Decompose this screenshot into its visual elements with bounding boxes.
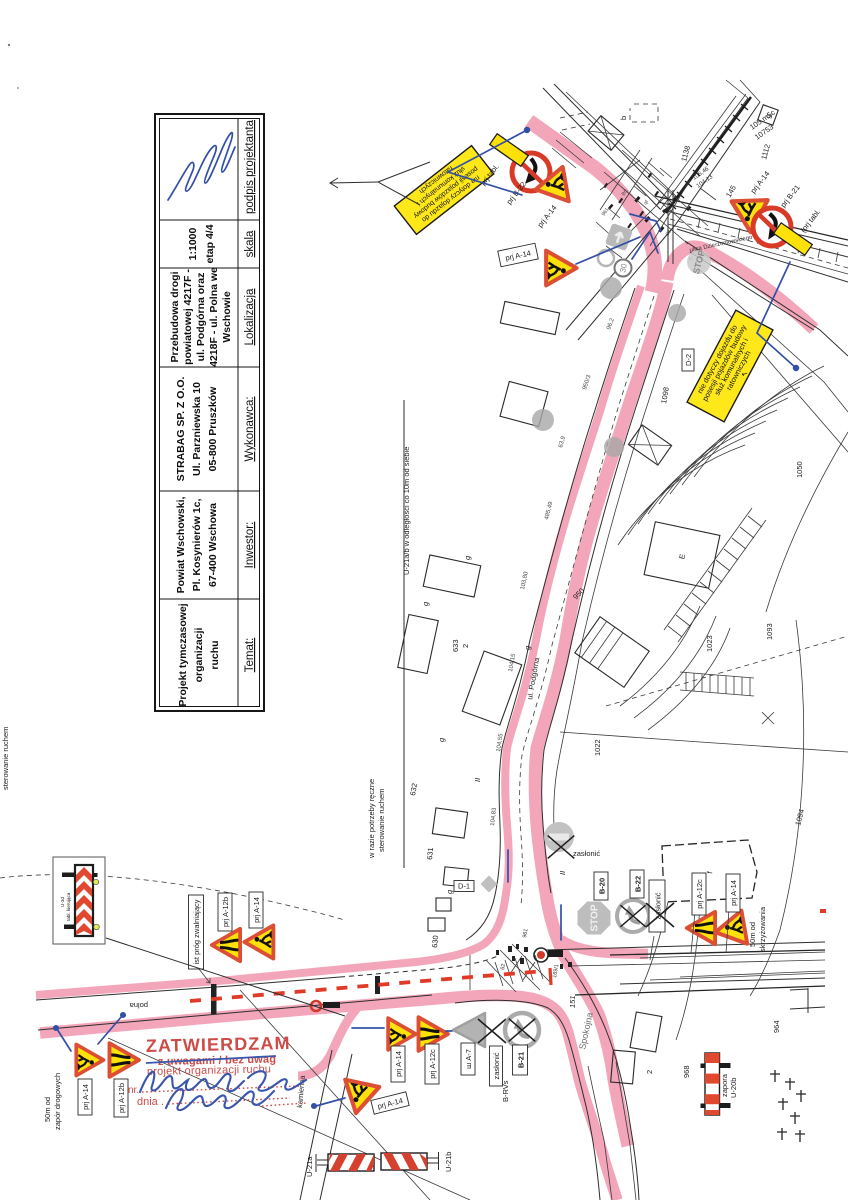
svg-text:1:1000: 1:1000 bbox=[187, 227, 199, 260]
svg-text:ist próg zwalniający: ist próg zwalniający bbox=[192, 899, 201, 964]
svg-text:U-21a/b w odległości co 10m od: U-21a/b w odległości co 10m od siebie bbox=[402, 447, 411, 575]
svg-text:Pl. Kosynierów 1c,: Pl. Kosynierów 1c, bbox=[191, 499, 203, 592]
svg-text:dnia .: dnia . bbox=[137, 1096, 164, 1108]
svg-text:2: 2 bbox=[461, 644, 470, 648]
svg-text:1022: 1022 bbox=[593, 739, 602, 756]
svg-text:U-3d: U-3d bbox=[60, 897, 65, 907]
svg-text:prj A-12b: prj A-12b bbox=[117, 1083, 126, 1113]
svg-text:nr.: nr. bbox=[128, 1085, 139, 1096]
svg-text:powiatowej 4217F -: powiatowej 4217F - bbox=[182, 269, 194, 365]
svg-text:D-1: D-1 bbox=[458, 882, 470, 891]
svg-text:zasłonić: zasłonić bbox=[573, 849, 600, 858]
svg-text:skrzyżowania: skrzyżowania bbox=[758, 906, 767, 952]
svg-text:ш A-7: ш A-7 bbox=[464, 1049, 473, 1069]
svg-text:4218F - ul. Polna we: 4218F - ul. Polna we bbox=[208, 267, 220, 367]
svg-text:2: 2 bbox=[645, 1070, 654, 1074]
svg-text:ruchu: ruchu bbox=[209, 640, 221, 669]
svg-text:1023: 1023 bbox=[705, 635, 714, 652]
svg-text:STRABAG SP. Z O.O.: STRABAG SP. Z O.O. bbox=[175, 377, 187, 482]
svg-text:Powiat Wschowski,: Powiat Wschowski, bbox=[175, 496, 187, 593]
svg-text:Lokalizacja: Lokalizacja bbox=[244, 288, 256, 345]
svg-text:Projekt tymczasowej: Projekt tymczasowej bbox=[177, 603, 189, 706]
svg-text:polna: polna bbox=[129, 1001, 148, 1010]
svg-text:prj A-14: prj A-14 bbox=[729, 880, 738, 906]
svg-text:sterowanie ruchem: sterowanie ruchem bbox=[377, 789, 386, 852]
svg-text:skala: skala bbox=[244, 230, 256, 257]
svg-text:B-21: B-21 bbox=[517, 1052, 526, 1068]
svg-text:tabl. kierująca: tabl. kierująca bbox=[66, 892, 71, 921]
svg-text:w razie potrzeby ręczne: w razie potrzeby ręczne bbox=[367, 779, 376, 859]
svg-text:prj A-12c: prj A-12c bbox=[695, 879, 704, 909]
svg-text:Ul. Parzniewska 10: Ul. Parzniewska 10 bbox=[191, 382, 203, 476]
svg-text:05-800 Pruszków: 05-800 Pruszków bbox=[207, 386, 219, 471]
svg-text:II: II bbox=[473, 778, 482, 782]
svg-text:podpis projektanta: podpis projektanta bbox=[244, 119, 256, 214]
svg-text:D-2: D-2 bbox=[684, 354, 693, 366]
svg-text:50m od: 50m od bbox=[43, 1097, 52, 1122]
svg-text:prj A-12c: prj A-12c bbox=[428, 1049, 437, 1079]
svg-text:50m od: 50m od bbox=[748, 922, 757, 947]
svg-text:ul. Podgórna oraz: ul. Podgórna oraz bbox=[195, 273, 207, 362]
svg-text:organizacji: organizacji bbox=[193, 627, 205, 682]
svg-text:Inwestor:: Inwestor: bbox=[244, 522, 256, 569]
svg-text:prj A-14: prj A-14 bbox=[394, 1051, 403, 1077]
svg-text:STOP: STOP bbox=[590, 904, 601, 931]
svg-text:zasłonić: zasłonić bbox=[492, 1052, 501, 1079]
svg-text:b: b bbox=[619, 116, 628, 120]
svg-text:ZATWIERDZAM: ZATWIERDZAM bbox=[146, 1033, 291, 1056]
svg-text:U-21b: U-21b bbox=[444, 1152, 453, 1172]
svg-text:B-20: B-20 bbox=[598, 878, 607, 894]
svg-text:Temat:: Temat: bbox=[244, 638, 256, 673]
svg-text:968: 968 bbox=[682, 1065, 691, 1078]
svg-text:zapór drogowych: zapór drogowych bbox=[53, 1073, 62, 1130]
svg-text:zapora: zapora bbox=[720, 1073, 729, 1097]
svg-text:B-RVs: B-RVs bbox=[501, 1080, 510, 1102]
svg-text:633: 633 bbox=[451, 639, 460, 652]
svg-text:631: 631 bbox=[425, 847, 435, 860]
svg-text:U-20b: U-20b bbox=[729, 1078, 738, 1098]
svg-text:1050: 1050 bbox=[795, 461, 804, 478]
svg-text:1093: 1093 bbox=[765, 623, 774, 640]
svg-text:151: 151 bbox=[568, 995, 577, 1008]
svg-text:67-400 Wschowa: 67-400 Wschowa bbox=[207, 503, 219, 587]
svg-text:prj A-14: prj A-14 bbox=[252, 897, 261, 923]
svg-text:964: 964 bbox=[772, 1020, 781, 1033]
svg-text:prj A-12b: prj A-12b bbox=[221, 897, 230, 927]
svg-text:U-21a: U-21a bbox=[305, 1156, 314, 1177]
svg-text:etap 4/4: etap 4/4 bbox=[204, 224, 216, 263]
svg-text:62: 62 bbox=[500, 963, 507, 970]
svg-text:B-22: B-22 bbox=[634, 876, 643, 892]
svg-text:Wykonawca:: Wykonawca: bbox=[244, 396, 256, 461]
svg-text:Przebudowa drogi: Przebudowa drogi bbox=[169, 271, 181, 362]
svg-text:prj A-14: prj A-14 bbox=[81, 1084, 90, 1110]
svg-text:II: II bbox=[558, 871, 567, 875]
svg-text:Wschowie: Wschowie bbox=[221, 291, 233, 343]
svg-text:sterowanie ruchem: sterowanie ruchem bbox=[1, 727, 10, 790]
svg-text:630: 630 bbox=[430, 935, 440, 948]
